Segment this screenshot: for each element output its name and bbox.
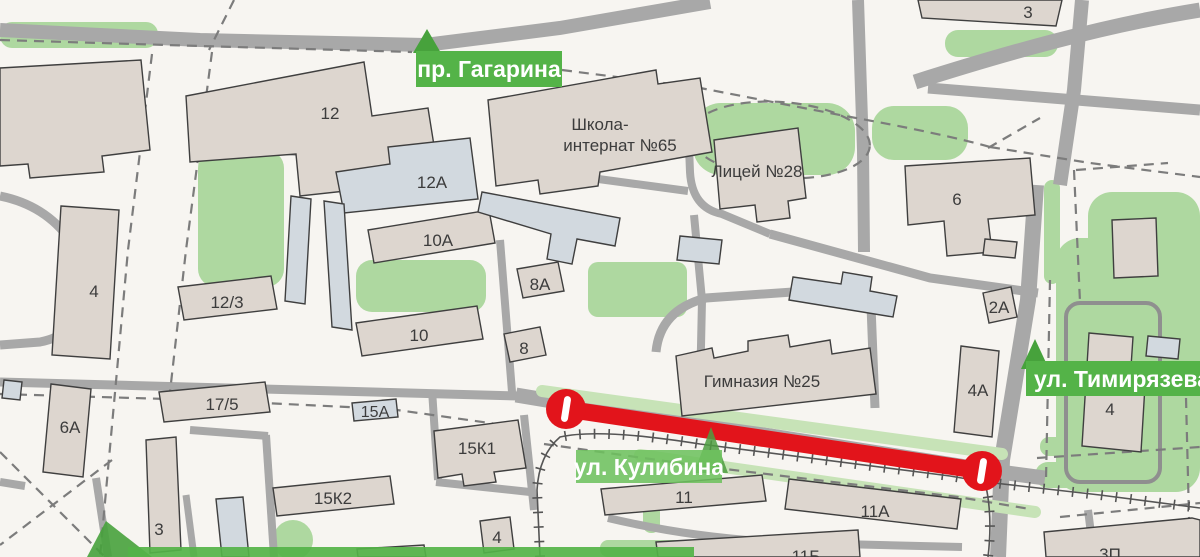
building-unlabeled	[789, 272, 897, 317]
building-label: 4	[492, 528, 501, 547]
school-label-line1: Школа-	[571, 115, 628, 134]
street-label-text: ул. Кулибина	[574, 454, 724, 480]
street-label-text: пр. Гагарина	[417, 56, 561, 82]
building-unlabeled	[0, 60, 150, 178]
building-label: 6А	[60, 418, 81, 437]
building-unlabeled	[983, 239, 1017, 258]
building-unlabeled	[677, 236, 722, 264]
building-label: 3	[154, 520, 163, 539]
building-label: 6	[952, 190, 961, 209]
closure-endpoint-icon	[546, 389, 586, 429]
street-label-text: ул. Тимирязева	[1034, 366, 1200, 392]
lyceum-label: Лицей №28	[711, 162, 802, 181]
building-label: 12А	[417, 173, 448, 192]
building-label: 3	[1023, 3, 1032, 22]
building-label: 3П	[1099, 545, 1121, 557]
building-label: 17/5	[205, 395, 238, 414]
building-label: 4	[89, 282, 98, 301]
building-4-left	[52, 206, 119, 359]
building-unlabeled	[285, 196, 311, 304]
building-unlabeled	[1146, 336, 1180, 359]
building-label: 8А	[530, 275, 551, 294]
building-label: 4А	[968, 381, 989, 400]
gymnasium-label: Гимназия №25	[704, 372, 820, 391]
building-label: 10А	[423, 231, 454, 250]
building-3-topright	[918, 0, 1062, 26]
school-label-line2: интернат №65	[563, 136, 677, 155]
building-3p	[1044, 518, 1200, 557]
building-label: 8	[519, 339, 528, 358]
building-unlabeled	[1112, 218, 1158, 278]
building-label: 15К2	[314, 489, 352, 508]
building-unlabeled	[324, 201, 352, 330]
building-label: 2А	[989, 298, 1010, 317]
building-label: 15А	[361, 404, 390, 421]
building-label: 12	[321, 104, 340, 123]
building-unlabeled	[2, 380, 22, 400]
building-label: 11Б	[792, 547, 821, 557]
building-label: 15К1	[458, 439, 496, 458]
building-label: 12/3	[210, 293, 243, 312]
building-label: 10	[410, 326, 429, 345]
building-label: 4	[1105, 400, 1114, 419]
building-label: 11А	[861, 502, 891, 521]
map-canvas[interactable]: 12 12А 10А 8А 10 8 12/3 4 6А 17/5 15А 15…	[0, 0, 1200, 557]
closure-endpoint-icon	[962, 451, 1002, 491]
building-label: 11	[675, 488, 693, 507]
